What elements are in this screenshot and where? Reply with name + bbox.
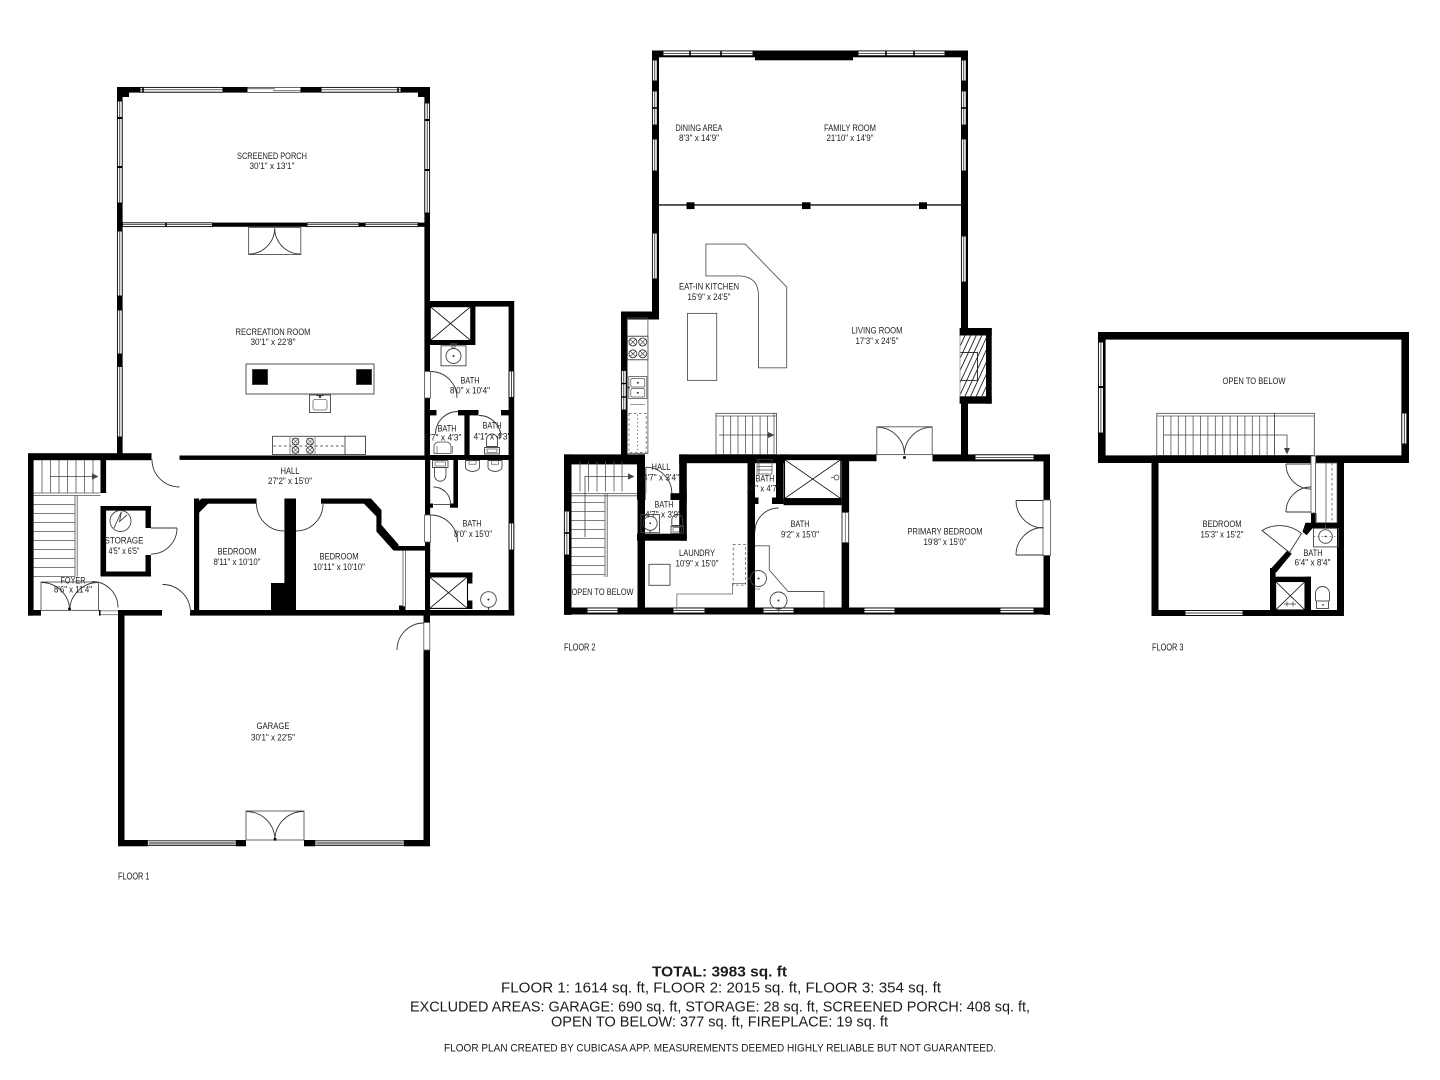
svg-text:5'7" x 4'3": 5'7" x 4'3" (425, 433, 462, 444)
svg-text:8'3" x 14'9": 8'3" x 14'9" (679, 133, 719, 144)
svg-text:EXCLUDED AREAS: GARAGE: 690 sq: EXCLUDED AREAS: GARAGE: 690 sq. ft, STOR… (410, 1000, 1030, 1016)
svg-text:OPEN TO BELOW: OPEN TO BELOW (572, 587, 635, 598)
svg-text:4'7" x 3'4": 4'7" x 3'4" (643, 473, 679, 484)
svg-text:27'2" x 15'0": 27'2" x 15'0" (268, 476, 312, 487)
svg-text:30'1" x 22'5": 30'1" x 22'5" (251, 733, 295, 744)
svg-text:21'10" x 14'9": 21'10" x 14'9" (827, 133, 874, 144)
svg-text:15'3" x 15'2": 15'3" x 15'2" (1201, 530, 1244, 541)
svg-text:FLOOR 2: FLOOR 2 (564, 643, 596, 654)
svg-text:8'0" x 10'4": 8'0" x 10'4" (450, 386, 490, 397)
svg-text:FLOOR 1: 1614 sq. ft, FLOOR 2:: FLOOR 1: 1614 sq. ft, FLOOR 2: 2015 sq. … (501, 981, 941, 997)
svg-text:10" x 4'7": 10" x 4'7" (747, 484, 780, 495)
svg-text:10'9" x 15'0": 10'9" x 15'0" (676, 559, 719, 570)
svg-text:30'1" x 13'1": 30'1" x 13'1" (250, 161, 295, 172)
svg-text:4'1" x 4'3": 4'1" x 4'3" (474, 432, 511, 443)
svg-text:8'0" x 15'0": 8'0" x 15'0" (454, 529, 492, 540)
svg-text:LAUNDRY: LAUNDRY (679, 548, 715, 559)
svg-text:4'5" x 6'5": 4'5" x 6'5" (109, 546, 140, 557)
svg-text:TOTAL: 3983 sq. ft: TOTAL: 3983 sq. ft (652, 964, 787, 981)
svg-text:GARAGE: GARAGE (257, 721, 290, 732)
svg-text:BEDROOM: BEDROOM (218, 547, 257, 558)
svg-text:4'7" x 3'9": 4'7" x 3'9" (645, 510, 681, 521)
svg-text:OPEN TO BELOW: 377 sq. ft, FIR: OPEN TO BELOW: 377 sq. ft, FIREPLACE: 19… (551, 1015, 888, 1031)
svg-text:OPEN TO BELOW: OPEN TO BELOW (1223, 376, 1287, 387)
svg-text:30'1" x 22'8": 30'1" x 22'8" (251, 337, 296, 348)
svg-text:BATH: BATH (483, 421, 502, 432)
svg-text:FLOOR PLAN CREATED BY CUBICASA: FLOOR PLAN CREATED BY CUBICASA APP. MEAS… (444, 1043, 996, 1055)
svg-text:10'11" x 10'10": 10'11" x 10'10" (313, 562, 365, 573)
svg-text:EAT-IN KITCHEN: EAT-IN KITCHEN (679, 282, 739, 293)
svg-text:BEDROOM: BEDROOM (320, 552, 359, 563)
svg-text:19'8" x 15'0": 19'8" x 15'0" (924, 537, 967, 548)
svg-text:HALL: HALL (652, 462, 672, 473)
svg-text:8'6" x 11'4": 8'6" x 11'4" (54, 585, 92, 596)
svg-text:BATH: BATH (791, 519, 810, 530)
svg-text:9'2" x 15'0": 9'2" x 15'0" (781, 530, 819, 541)
svg-text:LIVING ROOM: LIVING ROOM (852, 326, 903, 337)
svg-text:STORAGE: STORAGE (105, 536, 144, 547)
svg-text:FLOOR 1: FLOOR 1 (118, 872, 150, 883)
svg-text:6'4" x 8'4": 6'4" x 8'4" (1295, 558, 1331, 569)
svg-text:17'3" x 24'5": 17'3" x 24'5" (856, 336, 899, 347)
svg-text:FLOOR 3: FLOOR 3 (1152, 643, 1184, 654)
svg-text:15'9" x 24'5": 15'9" x 24'5" (688, 292, 731, 303)
svg-text:8'11" x 10'10": 8'11" x 10'10" (214, 557, 261, 568)
svg-text:BATH: BATH (463, 519, 482, 530)
svg-text:BEDROOM: BEDROOM (1203, 519, 1242, 530)
svg-text:PRIMARY BEDROOM: PRIMARY BEDROOM (908, 527, 983, 538)
